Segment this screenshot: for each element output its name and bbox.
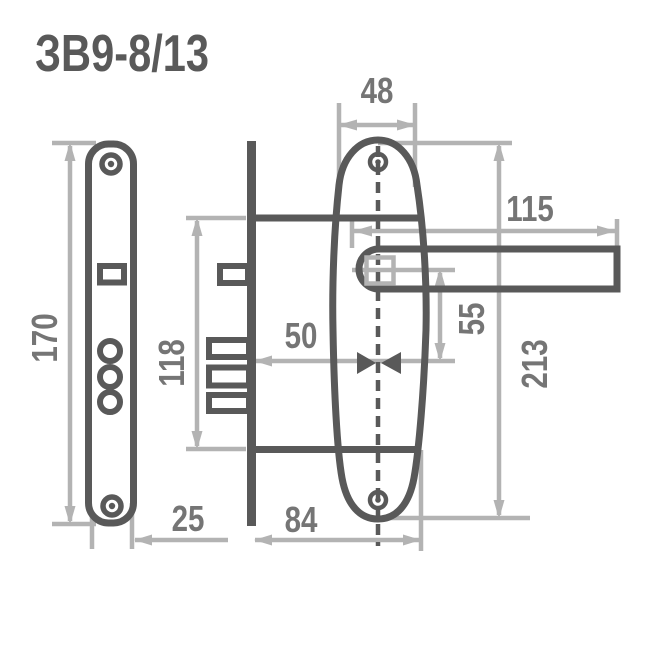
dim-label-118: 118 bbox=[151, 339, 191, 387]
dim-label-84: 84 bbox=[285, 499, 318, 539]
lock-technical-drawing: ЗВ9-8/13 48 115 50 25 84 170 118 55 213 bbox=[0, 0, 650, 650]
deadbolt-pin-3 bbox=[209, 395, 249, 411]
dimension-118 bbox=[186, 217, 246, 450]
dim-label-48: 48 bbox=[361, 70, 394, 110]
dim-label-50: 50 bbox=[285, 315, 318, 355]
latch-bolt bbox=[220, 266, 248, 283]
faceplate-outline bbox=[89, 144, 134, 523]
keyhole-left bbox=[357, 352, 376, 374]
dim-label-115: 115 bbox=[506, 188, 554, 228]
faceplate-latch-hole bbox=[100, 266, 124, 283]
deadbolt-pin-1 bbox=[209, 340, 249, 357]
drawing-canvas: ЗВ9-8/13 48 115 50 25 84 170 118 55 213 bbox=[0, 0, 650, 650]
drawing-title: ЗВ9-8/13 bbox=[35, 24, 209, 83]
keyhole-right bbox=[381, 352, 401, 374]
faceplate-bolt-hole-3 bbox=[100, 392, 120, 412]
dimension-115 bbox=[352, 219, 617, 248]
escutcheon-front-view bbox=[333, 140, 426, 546]
dim-label-55: 55 bbox=[451, 303, 491, 336]
faceplate-bolt-hole-2 bbox=[100, 367, 120, 387]
dim-label-213: 213 bbox=[514, 339, 554, 388]
faceplate-front-view bbox=[89, 144, 134, 523]
dim-label-25: 25 bbox=[172, 498, 205, 538]
deadbolt-pin-2 bbox=[209, 368, 249, 386]
faceplate-bolt-hole-1 bbox=[100, 341, 120, 361]
dim-label-170: 170 bbox=[24, 313, 64, 362]
